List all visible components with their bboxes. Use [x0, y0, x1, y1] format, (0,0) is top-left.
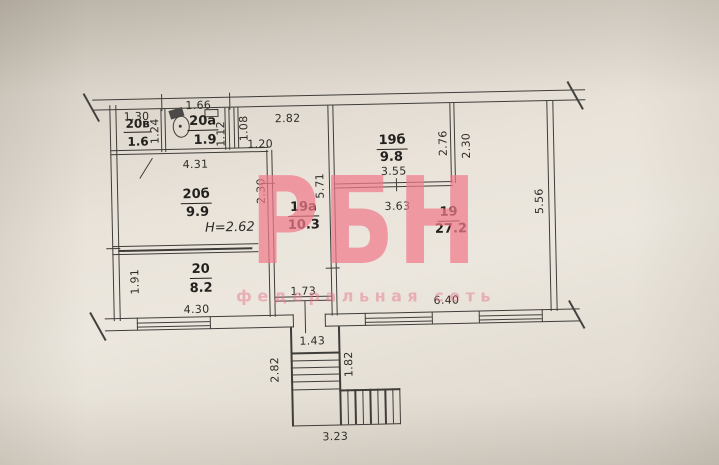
doorway-opening — [294, 312, 325, 330]
window-cap — [365, 313, 367, 326]
dim-1-20: 1.20 — [247, 137, 273, 151]
toilet-bowl-dot — [179, 125, 182, 128]
stair-step-line — [369, 389, 371, 424]
window-cap — [432, 311, 434, 324]
stair-step-line — [362, 389, 364, 424]
stair-wall — [338, 326, 342, 425]
stair-ext-right-line — [399, 388, 401, 424]
dim-4-30: 4.30 — [184, 303, 210, 317]
dim-1-43: 1.43 — [299, 334, 325, 348]
door-swing-line — [139, 158, 153, 179]
watermark-logo: РБН — [250, 161, 480, 281]
stair-step-line — [291, 366, 340, 369]
dim-1-66: 1.66 — [185, 99, 211, 113]
ceiling-height-note: H=2.62 — [205, 220, 255, 236]
stair-step-line — [291, 373, 340, 376]
stair-step-line — [291, 388, 340, 391]
window-cap — [542, 309, 544, 322]
dimension-tick — [161, 94, 163, 111]
stair-step-line — [354, 389, 356, 424]
stair-step-line — [384, 388, 386, 423]
stair-step-line — [377, 389, 379, 424]
stair-step-line — [291, 380, 340, 383]
bottom-wall — [105, 308, 580, 331]
doorway-jamb — [293, 314, 295, 327]
room-label-20: 20 — [190, 262, 212, 279]
dim-1-91: 1.91 — [128, 269, 142, 295]
scanned-floor-plan-photo: 20в 1.6 20а 1.9 20б 9.9 20 8.2 19а 10.3 … — [0, 0, 719, 465]
stair-wall — [290, 327, 294, 426]
watermark-tagline: федеральная сеть — [236, 287, 496, 306]
dim-3-23: 3.23 — [322, 430, 348, 444]
window-cap — [137, 318, 139, 331]
window-cap — [479, 310, 481, 323]
dim-5-56: 5.56 — [533, 188, 547, 214]
dim-4-31: 4.31 — [183, 158, 209, 172]
stair-step-line — [347, 389, 349, 424]
stair-step-line — [392, 388, 394, 423]
dim-1-12: 1.12 — [214, 121, 228, 147]
top-wall — [92, 89, 585, 110]
dim-2-82-top: 2.82 — [275, 112, 301, 126]
doorway-jamb — [324, 314, 326, 327]
left-wall — [109, 105, 121, 321]
window-cap — [210, 316, 212, 329]
dim-1-24: 1.24 — [148, 118, 162, 144]
room-label-20b: 20б — [180, 187, 212, 205]
dim-2-82-stair: 2.82 — [268, 357, 282, 383]
room-label-19b: 19б — [376, 132, 408, 150]
dimension-tick — [229, 93, 231, 110]
room-area-20a: 1.9 — [193, 132, 216, 147]
right-wall — [546, 101, 557, 311]
room-area-20b: 9.9 — [186, 205, 209, 220]
stair-step-line — [291, 359, 340, 362]
dim-1-30: 1.30 — [124, 110, 150, 124]
room-area-20v: 1.6 — [127, 134, 149, 148]
stair-landing-line — [290, 351, 339, 354]
room-area-20: 8.2 — [189, 281, 212, 296]
dim-1-82: 1.82 — [342, 351, 356, 377]
